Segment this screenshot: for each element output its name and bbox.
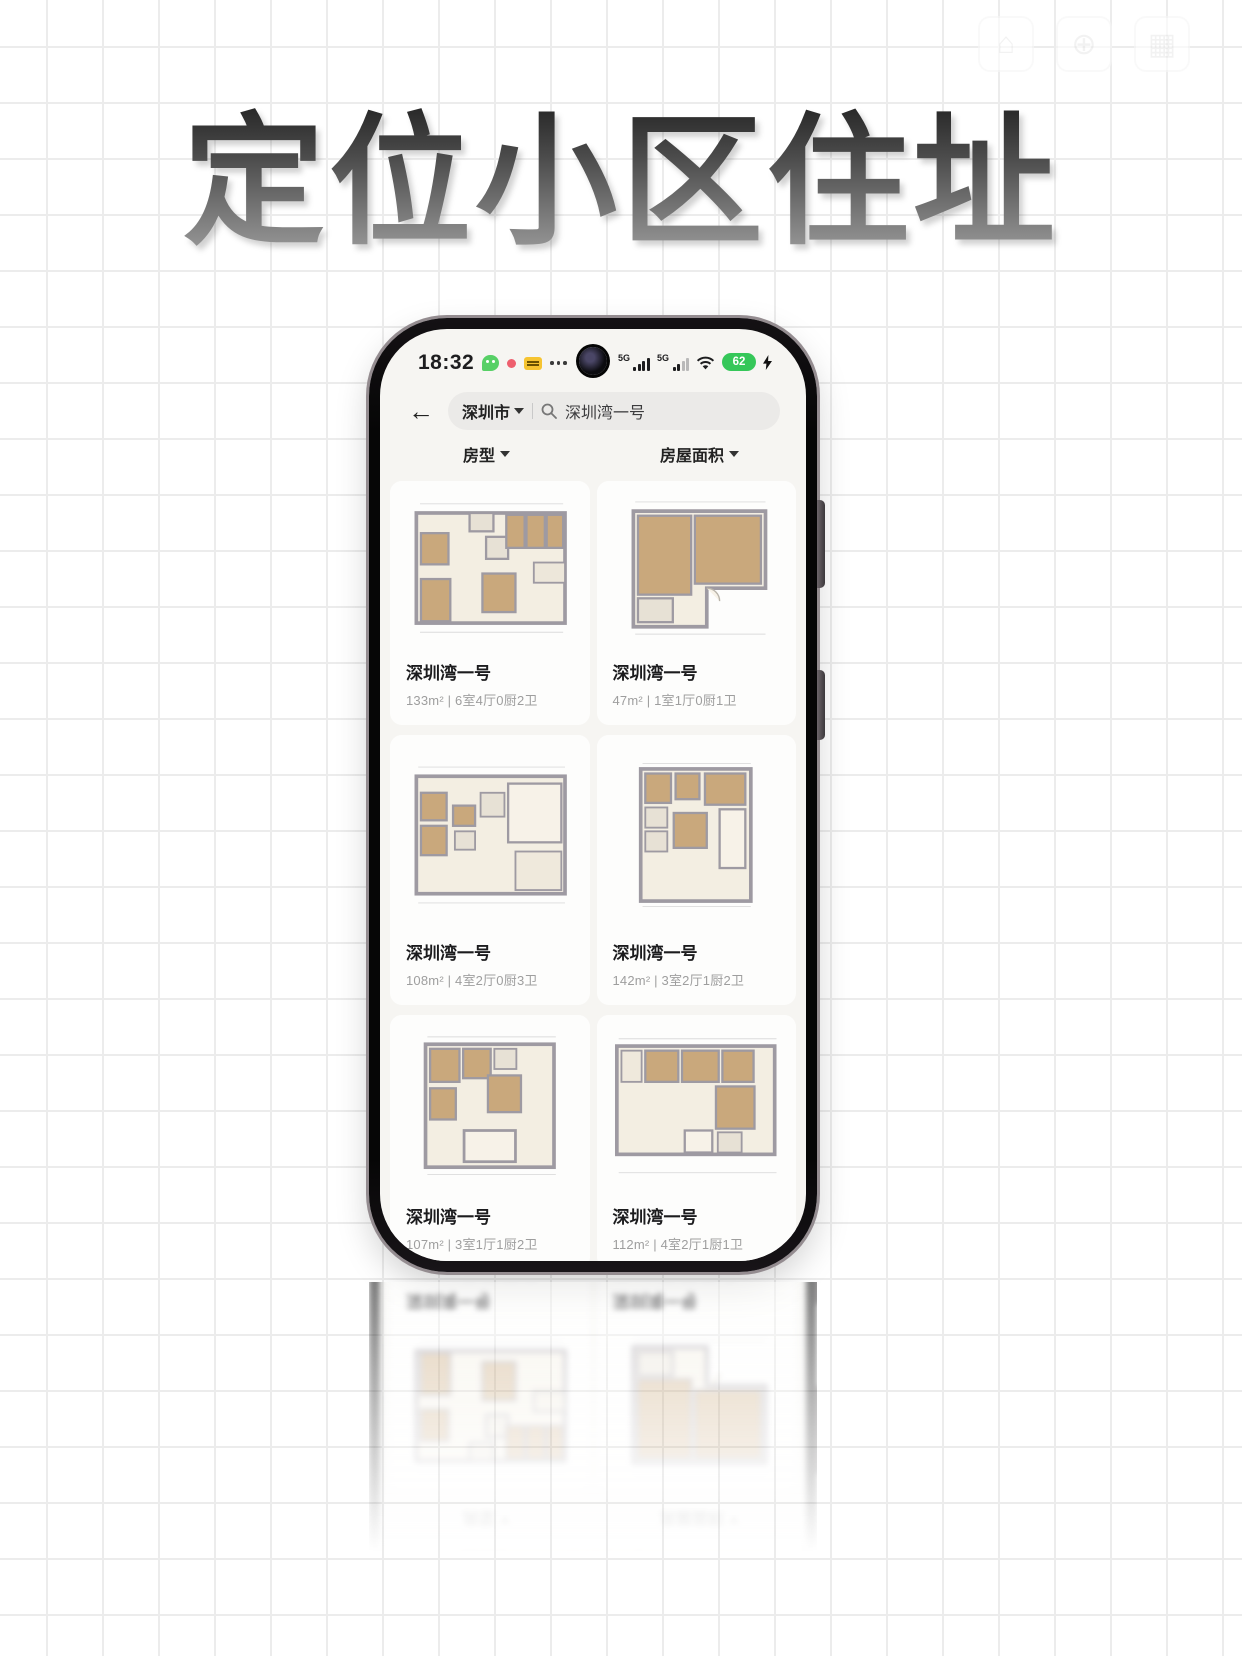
listing-name: 深圳湾一号 xyxy=(613,939,785,964)
listing-name: 深圳湾一号 xyxy=(406,1290,578,1315)
charging-bolt-icon xyxy=(763,355,772,370)
listing-grid: 深圳湾一号 133m² | 6室4厅0厨2卫 xyxy=(380,477,806,1261)
corner-watermark-icons: ⌂ ⊕ ▦ xyxy=(978,16,1190,72)
filter-room-type[interactable]: 房型 xyxy=(380,442,593,466)
listing-card: 深圳湾一号 47m² | 1室1厅0厨1卫 xyxy=(597,1249,797,1493)
power-button xyxy=(817,1234,825,1304)
volume-button[interactable] xyxy=(817,500,825,588)
listing-spec: 108m² | 4室2厅0厨3卫 xyxy=(406,970,578,989)
more-notifications-icon xyxy=(550,1609,567,1613)
listing-spec: 107m² | 3室1厅1厨2卫 xyxy=(406,1234,578,1253)
back-button: ← xyxy=(408,1550,434,1576)
floorplan-image xyxy=(597,481,797,653)
search-header: ← 深圳市 深圳湾一号 xyxy=(380,381,806,431)
status-bar: 18:32 5G 5G 6 xyxy=(380,1593,806,1645)
caret-down-icon xyxy=(729,451,739,457)
apps-icon: ▦ xyxy=(1134,16,1190,72)
phone-reflection: 18:32 5G 5G 6 xyxy=(369,1282,817,1656)
charging-bolt-icon xyxy=(763,1604,772,1619)
camera-punch-hole xyxy=(579,347,607,375)
search-icon xyxy=(541,1555,557,1571)
clock: 18:32 xyxy=(418,351,474,375)
yellow-app-notification-icon xyxy=(524,1605,542,1618)
wifi-icon xyxy=(696,1603,715,1618)
home-icon: ⌂ xyxy=(978,16,1034,72)
city-selector[interactable]: 深圳市 xyxy=(462,399,524,423)
floorplan-image xyxy=(390,735,590,933)
floorplan-image xyxy=(597,1015,797,1197)
phone-screen: 18:32 5G 5G 6 xyxy=(380,329,806,1261)
battery-indicator: 62 xyxy=(722,1603,756,1621)
listing-name: 深圳湾一号 xyxy=(406,1203,578,1228)
signal-sim1-icon: 5G xyxy=(618,1603,650,1616)
listing-card[interactable]: 深圳湾一号 112m² | 4室2厅1厨1卫 xyxy=(597,1015,797,1261)
signal-sim2-icon: 5G xyxy=(657,358,689,371)
search-input: 深圳湾一号 xyxy=(565,1551,645,1575)
divider xyxy=(532,403,533,419)
filter-floor-area[interactable]: 房屋面积 xyxy=(593,442,806,466)
phone-mockup: 18:32 5G 5G 6 xyxy=(369,318,817,1272)
caret-down-icon xyxy=(500,451,510,457)
more-notifications-icon xyxy=(550,361,567,365)
wechat-notification-icon xyxy=(482,1603,499,1619)
divider xyxy=(532,1555,533,1571)
wechat-notification-icon xyxy=(482,355,499,371)
battery-indicator: 62 xyxy=(722,353,756,371)
search-icon xyxy=(541,403,557,419)
floorplan-image xyxy=(390,1015,590,1197)
caret-down-icon xyxy=(729,1517,739,1523)
clock: 18:32 xyxy=(418,1599,474,1623)
caret-down-icon xyxy=(514,1560,524,1566)
camera-punch-hole xyxy=(579,1599,607,1627)
listing-name: 深圳湾一号 xyxy=(613,1290,785,1315)
floorplan-image xyxy=(597,1321,797,1493)
listing-name: 深圳湾一号 xyxy=(406,939,578,964)
wifi-icon xyxy=(696,356,715,371)
listing-name: 深圳湾一号 xyxy=(406,659,578,684)
listing-card[interactable]: 深圳湾一号 107m² | 3室1厅1厨2卫 xyxy=(390,1015,590,1261)
back-button[interactable]: ← xyxy=(408,398,434,424)
listing-spec: 47m² | 1室1厅0厨1卫 xyxy=(613,690,785,709)
red-dot-notification-icon xyxy=(507,1607,516,1616)
globe-icon: ⊕ xyxy=(1056,16,1112,72)
red-dot-notification-icon xyxy=(507,359,516,368)
listing-card: 深圳湾一号 133m² | 6室4厅0厨2卫 xyxy=(390,1249,590,1493)
floorplan-image xyxy=(597,735,797,933)
listing-card[interactable]: 深圳湾一号 47m² | 1室1厅0厨1卫 xyxy=(597,481,797,725)
listing-card[interactable]: 深圳湾一号 133m² | 6室4厅0厨2卫 xyxy=(390,481,590,725)
search-header: ← 深圳市 深圳湾一号 xyxy=(380,1543,806,1593)
power-button[interactable] xyxy=(817,670,825,740)
yellow-app-notification-icon xyxy=(524,357,542,370)
floorplan-image xyxy=(390,1321,590,1493)
listing-spec: 142m² | 3室2厅1厨2卫 xyxy=(613,970,785,989)
signal-sim2-icon: 5G xyxy=(657,1603,689,1616)
filter-room-type: 房型 xyxy=(380,1508,593,1532)
listing-spec: 133m² | 6室4厅0厨2卫 xyxy=(406,690,578,709)
search-input[interactable]: 深圳湾一号 xyxy=(565,399,645,423)
search-bar[interactable]: 深圳市 深圳湾一号 xyxy=(448,392,780,430)
caret-down-icon xyxy=(514,408,524,414)
search-bar: 深圳市 深圳湾一号 xyxy=(448,1544,780,1582)
filter-row: 房型 房屋面积 xyxy=(380,1497,806,1543)
floorplan-image xyxy=(390,481,590,653)
filter-floor-area: 房屋面积 xyxy=(593,1508,806,1532)
listing-card[interactable]: 深圳湾一号 142m² | 3室2厅1厨2卫 xyxy=(597,735,797,1005)
page-title: 定位小区住址 xyxy=(0,66,1242,272)
volume-button xyxy=(817,1386,825,1474)
filter-row: 房型 房屋面积 xyxy=(380,431,806,477)
listing-name: 深圳湾一号 xyxy=(613,1203,785,1228)
city-selector: 深圳市 xyxy=(462,1551,524,1575)
listing-card[interactable]: 深圳湾一号 108m² | 4室2厅0厨3卫 xyxy=(390,735,590,1005)
listing-spec: 112m² | 4室2厅1厨1卫 xyxy=(613,1234,785,1253)
listing-name: 深圳湾一号 xyxy=(613,659,785,684)
caret-down-icon xyxy=(500,1517,510,1523)
signal-sim1-icon: 5G xyxy=(618,358,650,371)
